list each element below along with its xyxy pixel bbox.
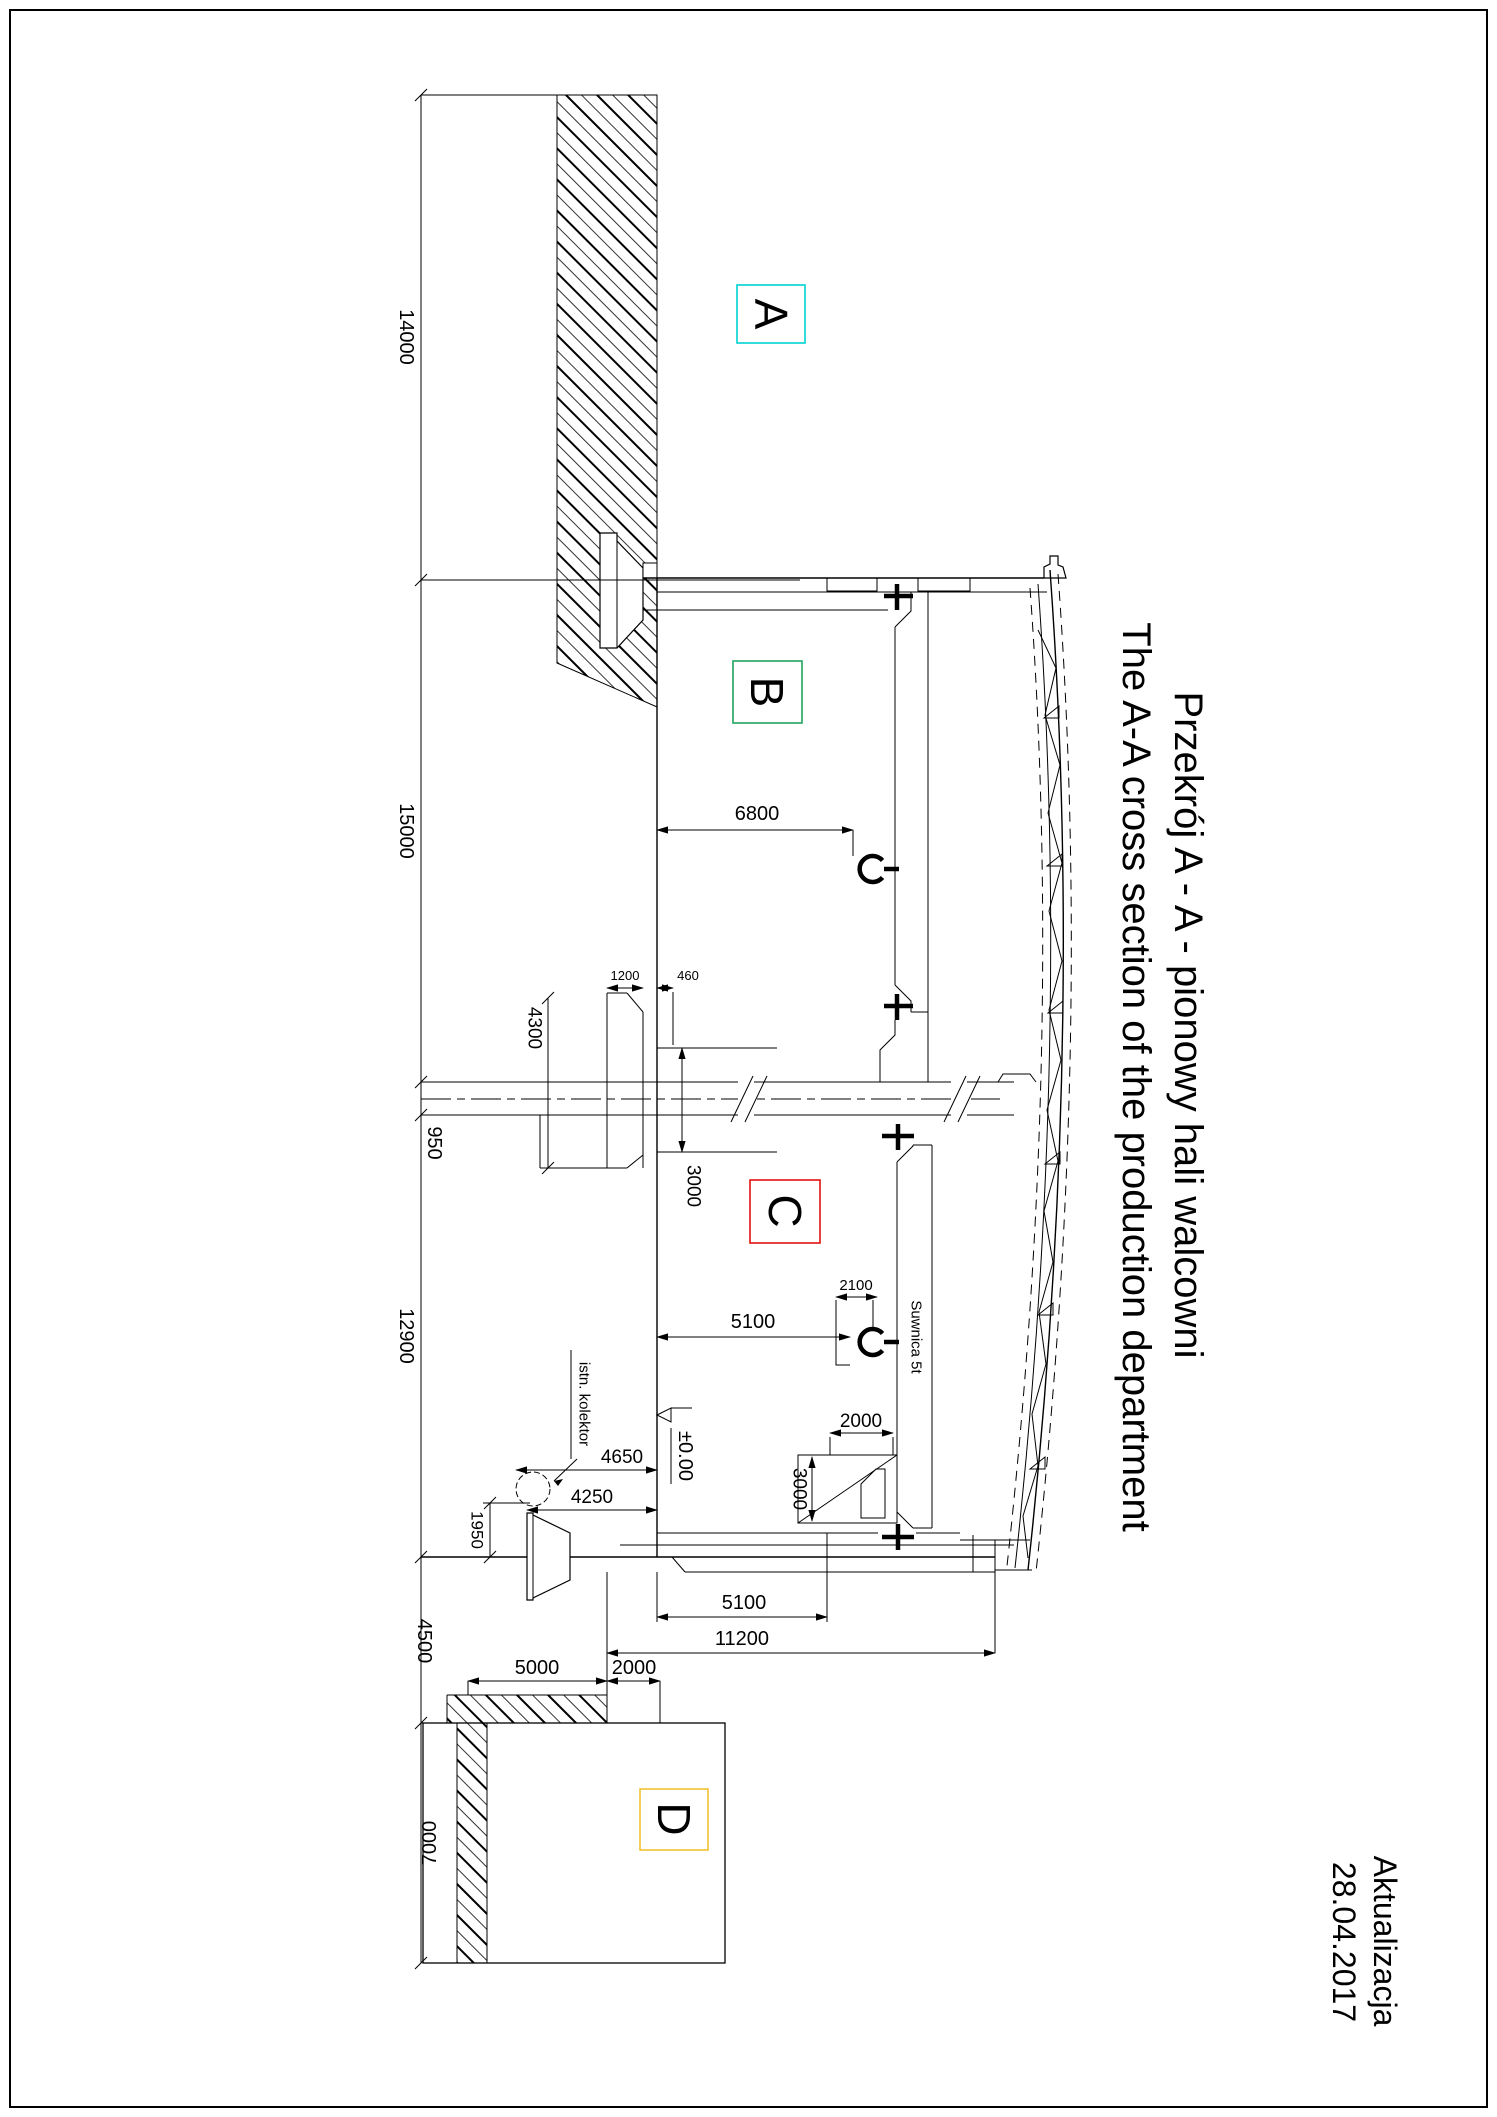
update-date: 28.04.2017	[1326, 1862, 1362, 2022]
dim-label-1950: 1950	[468, 1511, 487, 1549]
roof-edge	[643, 556, 1066, 610]
dim-label-3000-rail: 3000	[683, 1165, 704, 1207]
cross-section-drawing: A B C D 14000 15000 950 12900 4500 7000 …	[0, 0, 1497, 2117]
girder-corbel	[880, 1012, 928, 1082]
zone-label-b: B	[733, 661, 802, 723]
middle-column	[540, 992, 673, 1168]
kolektor-pipe-icon	[516, 1472, 550, 1506]
dim-label-15000: 15000	[395, 803, 417, 859]
dim-label-460: 460	[677, 968, 699, 983]
hook-b	[657, 830, 899, 882]
crane-trolley	[798, 1433, 897, 1523]
dim-label-4250: 4250	[571, 1487, 613, 1508]
zone-letter: C	[759, 1194, 811, 1227]
dim-label-5000: 5000	[515, 1657, 560, 1679]
zone-label-d: D	[640, 1789, 708, 1850]
dim-label-4300: 4300	[524, 1007, 545, 1049]
zone-letter: B	[741, 677, 793, 708]
dim-label-3000-trolley: 3000	[789, 1468, 810, 1510]
dim-label-950: 950	[423, 1126, 445, 1159]
zone-label-c: C	[750, 1180, 820, 1243]
hook-c	[657, 1297, 899, 1365]
runway-beam	[421, 1074, 1036, 1122]
dim-label-14000: 14000	[395, 309, 417, 365]
dim-label-2100: 2100	[839, 1277, 872, 1294]
dim-label-4650: 4650	[601, 1447, 643, 1468]
parapet	[1044, 556, 1066, 578]
crane-hook-icon	[860, 856, 883, 882]
dim-label-4500: 4500	[413, 1619, 435, 1664]
bottom-dims	[607, 1533, 995, 1723]
level-label: ±0.00	[674, 1431, 696, 1481]
kolektor-label: istn. kolektor	[576, 1362, 593, 1446]
roof-truss	[995, 570, 1071, 1572]
drawing-title-en: The A-A cross section of the production …	[1114, 622, 1158, 1531]
dim-label-6800: 6800	[735, 803, 780, 825]
update-label: Aktualizacja	[1367, 1856, 1403, 2027]
dim-label-12900: 12900	[395, 1308, 417, 1364]
dim-label-2000: 2000	[840, 1411, 882, 1432]
crane-hook-icon	[860, 1329, 883, 1355]
dim-label-5100-bottom: 5100	[722, 1592, 767, 1614]
dim-label-7000: 7000	[419, 1821, 441, 1866]
zone-label-a: A	[737, 285, 805, 343]
zone-letter: D	[648, 1802, 700, 1835]
dim-label-1200: 1200	[611, 968, 640, 983]
crane-label: Suwnica 5t	[908, 1300, 925, 1374]
dim-label-5100-hook: 5100	[731, 1311, 776, 1333]
crane-girder-b	[880, 584, 928, 1082]
footing-bottom	[483, 1350, 657, 1600]
drawing-page: A B C D 14000 15000 950 12900 4500 7000 …	[0, 0, 1497, 2117]
dim-label-2000-bottom: 2000	[612, 1657, 657, 1679]
drawing-title-pl: Przekrój A - A - pionowy hali walcowni	[1166, 692, 1210, 1359]
dim-label-11200: 11200	[715, 1628, 769, 1650]
zone-letter: A	[745, 299, 797, 330]
